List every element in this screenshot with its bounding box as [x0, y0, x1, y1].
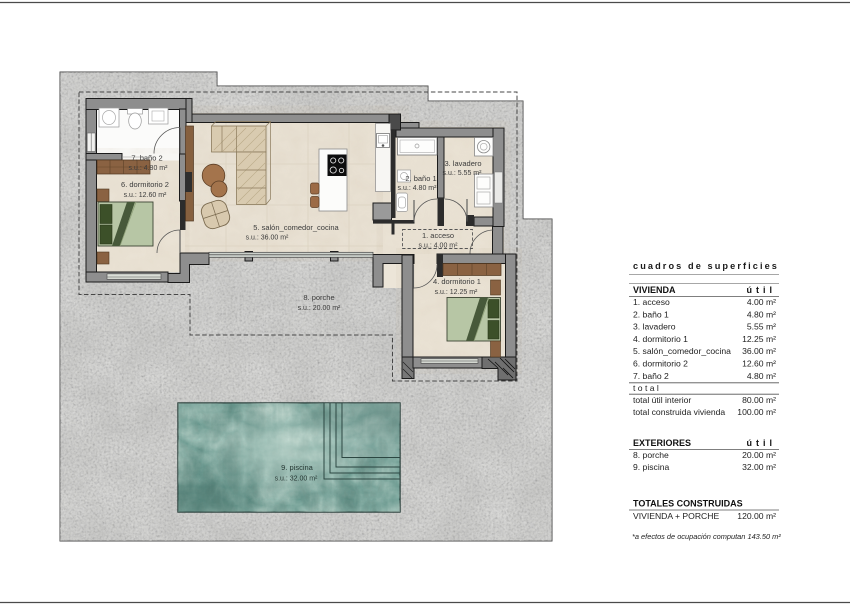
- svg-text:9. piscina: 9. piscina: [633, 462, 670, 472]
- svg-text:8. porche: 8. porche: [303, 293, 334, 302]
- svg-text:total: total: [633, 383, 661, 393]
- svg-text:3. lavadero: 3. lavadero: [444, 159, 481, 168]
- svg-text:7. baño 2: 7. baño 2: [633, 371, 669, 381]
- svg-text:8. porche: 8. porche: [633, 450, 669, 460]
- svg-text:7. baño 2: 7. baño 2: [131, 154, 162, 163]
- svg-text:TOTALES CONSTRUIDAS: TOTALES CONSTRUIDAS: [633, 499, 743, 509]
- svg-text:9. piscina: 9. piscina: [281, 463, 314, 472]
- svg-text:5. salón_comedor_cocina: 5. salón_comedor_cocina: [253, 223, 339, 232]
- svg-text:*a efectos de ocupación comput: *a efectos de ocupación computan 143.50 …: [632, 532, 781, 541]
- svg-text:s.u.: 4.80 m²: s.u.: 4.80 m²: [129, 165, 169, 172]
- svg-text:100.00 m²: 100.00 m²: [737, 407, 776, 417]
- svg-text:VIVIENDA: VIVIENDA: [633, 285, 676, 295]
- svg-text:útil: útil: [747, 438, 777, 448]
- svg-text:s.u.: 4.80 m²: s.u.: 4.80 m²: [398, 185, 438, 192]
- svg-text:s.u.: 20.00 m²: s.u.: 20.00 m²: [298, 305, 341, 312]
- svg-text:total útil interior: total útil interior: [633, 395, 691, 405]
- svg-text:s.u.: 12.60 m²: s.u.: 12.60 m²: [124, 192, 167, 199]
- svg-text:s.u.: 36.00 m²: s.u.: 36.00 m²: [246, 235, 289, 242]
- svg-text:80.00 m²: 80.00 m²: [742, 395, 776, 405]
- svg-text:36.00 m²: 36.00 m²: [742, 346, 776, 356]
- svg-text:total construida vivienda: total construida vivienda: [633, 407, 725, 417]
- svg-text:EXTERIORES: EXTERIORES: [633, 438, 691, 448]
- svg-text:6. dormitorio 2: 6. dormitorio 2: [121, 180, 169, 189]
- svg-text:4. dormitorio 1: 4. dormitorio 1: [633, 334, 688, 344]
- svg-text:útil: útil: [747, 285, 777, 295]
- svg-text:4.80 m²: 4.80 m²: [747, 309, 776, 319]
- svg-text:3. lavadero: 3. lavadero: [633, 322, 676, 332]
- svg-text:32.00 m²: 32.00 m²: [742, 462, 776, 472]
- svg-text:1. acceso: 1. acceso: [633, 297, 670, 307]
- svg-text:cuadros de superficies: cuadros de superficies: [633, 261, 779, 271]
- svg-text:4.00 m²: 4.00 m²: [747, 297, 776, 307]
- svg-text:1. acceso: 1. acceso: [422, 231, 454, 240]
- svg-text:2. baño 1: 2. baño 1: [405, 174, 436, 183]
- svg-text:4.80 m²: 4.80 m²: [747, 371, 776, 381]
- svg-text:s.u.: 4.00 m²: s.u.: 4.00 m²: [419, 243, 459, 250]
- svg-text:s.u.: 5.55 m²: s.u.: 5.55 m²: [443, 170, 483, 177]
- svg-text:5.55 m²: 5.55 m²: [747, 322, 776, 332]
- svg-text:2. baño 1: 2. baño 1: [633, 309, 669, 319]
- svg-text:20.00 m²: 20.00 m²: [742, 450, 776, 460]
- svg-text:s.u.: 32.00 m²: s.u.: 32.00 m²: [275, 476, 318, 483]
- svg-text:4. dormitorio 1: 4. dormitorio 1: [433, 277, 481, 286]
- svg-text:5. salón_comedor_cocina: 5. salón_comedor_cocina: [633, 346, 731, 356]
- svg-text:120.00 m²: 120.00 m²: [737, 511, 776, 521]
- svg-text:s.u.: 12.25 m²: s.u.: 12.25 m²: [435, 289, 478, 296]
- svg-text:12.60 m²: 12.60 m²: [742, 359, 776, 369]
- svg-text:VIVIENDA + PORCHE: VIVIENDA + PORCHE: [633, 511, 719, 521]
- svg-text:12.25 m²: 12.25 m²: [742, 334, 776, 344]
- svg-text:6. dormitorio 2: 6. dormitorio 2: [633, 359, 688, 369]
